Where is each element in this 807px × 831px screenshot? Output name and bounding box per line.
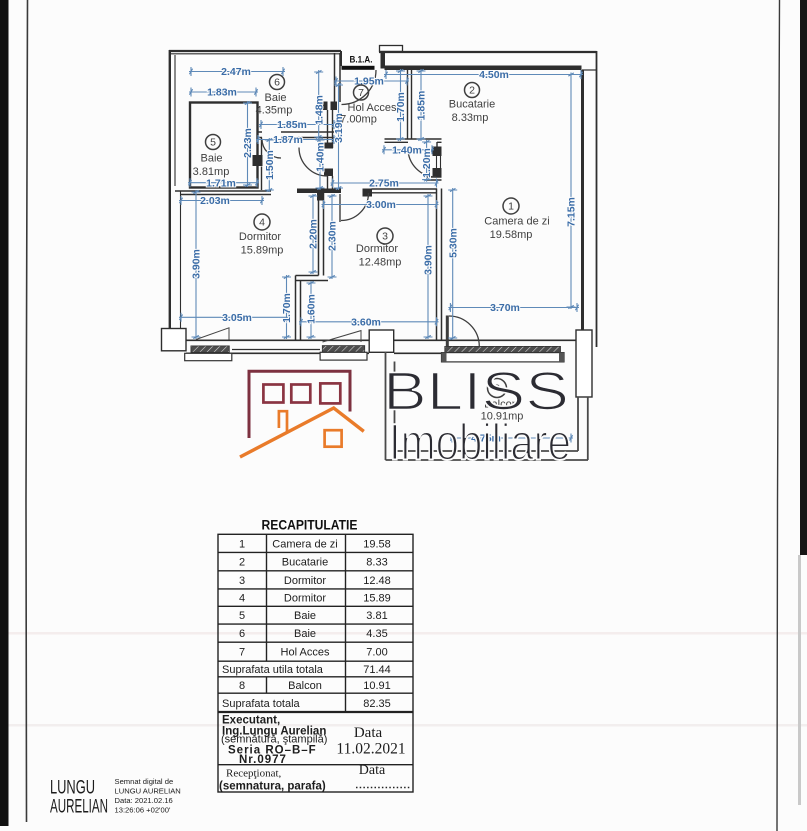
svg-text:7.15m: 7.15m bbox=[566, 197, 578, 227]
svg-text:2.30m: 2.30m bbox=[327, 221, 339, 251]
svg-text:5: 5 bbox=[210, 137, 216, 149]
svg-text:13:26:06 +02'00': 13:26:06 +02'00' bbox=[115, 806, 171, 815]
svg-text:3.81mp: 3.81mp bbox=[193, 166, 230, 178]
svg-text:Baie: Baie bbox=[264, 92, 286, 104]
svg-text:4.50m: 4.50m bbox=[479, 69, 509, 81]
svg-text:3: 3 bbox=[382, 231, 388, 243]
svg-text:8.33mp: 8.33mp bbox=[452, 112, 489, 124]
svg-text:1: 1 bbox=[508, 201, 514, 213]
svg-text:Dormitor: Dormitor bbox=[284, 593, 327, 605]
svg-text:Camera de zi: Camera de zi bbox=[272, 538, 337, 550]
svg-text:82.35: 82.35 bbox=[363, 698, 391, 710]
svg-text:Baie: Baie bbox=[294, 628, 316, 640]
svg-text:4.35mp: 4.35mp bbox=[256, 105, 293, 117]
svg-text:LUNGU AURELIAN: LUNGU AURELIAN bbox=[115, 787, 181, 796]
svg-text:3.90m: 3.90m bbox=[191, 249, 203, 279]
svg-text:1.70m: 1.70m bbox=[281, 293, 293, 323]
svg-text:7.00: 7.00 bbox=[366, 647, 387, 659]
svg-text:12.48mp: 12.48mp bbox=[359, 257, 402, 269]
svg-text:AURELIAN: AURELIAN bbox=[50, 796, 108, 818]
svg-text:Data: 2021.02.16: Data: 2021.02.16 bbox=[115, 796, 173, 805]
svg-text:7: 7 bbox=[239, 647, 245, 659]
svg-text:Camera de zi: Camera de zi bbox=[484, 216, 549, 228]
svg-text:10.91: 10.91 bbox=[363, 680, 391, 692]
svg-text:4: 4 bbox=[239, 593, 245, 605]
svg-text:2.75m: 2.75m bbox=[369, 178, 399, 190]
svg-text:Data: Data bbox=[359, 763, 386, 778]
svg-text:B.1.A.: B.1.A. bbox=[350, 55, 373, 66]
svg-text:1.87m: 1.87m bbox=[273, 134, 303, 146]
svg-text:Baie: Baie bbox=[200, 153, 222, 165]
svg-text:1.60m: 1.60m bbox=[306, 294, 318, 324]
svg-text:(semnatura, parafa): (semnatura, parafa) bbox=[219, 781, 326, 793]
svg-text:7: 7 bbox=[358, 87, 364, 99]
svg-text:6: 6 bbox=[274, 77, 280, 89]
svg-text:4: 4 bbox=[259, 217, 265, 229]
svg-text:2.20m: 2.20m bbox=[308, 219, 320, 249]
svg-text:Bucatarie: Bucatarie bbox=[282, 557, 328, 569]
svg-text:19.58: 19.58 bbox=[363, 538, 391, 550]
svg-text:3.70m: 3.70m bbox=[490, 302, 520, 314]
svg-text:Hol Acces: Hol Acces bbox=[281, 647, 330, 659]
svg-text:12.48: 12.48 bbox=[363, 575, 391, 587]
svg-text:8.33: 8.33 bbox=[366, 557, 387, 569]
svg-text:Dormitor: Dormitor bbox=[239, 231, 282, 243]
svg-text:1.50m: 1.50m bbox=[264, 150, 276, 180]
svg-text:1.48m: 1.48m bbox=[313, 95, 325, 125]
svg-text:1.83m: 1.83m bbox=[207, 87, 237, 99]
svg-text:5.30m: 5.30m bbox=[447, 228, 459, 258]
svg-text:1: 1 bbox=[239, 538, 245, 550]
svg-text:Dormitor: Dormitor bbox=[284, 575, 327, 587]
svg-text:19.58mp: 19.58mp bbox=[490, 229, 533, 241]
svg-text:3.00m: 3.00m bbox=[366, 199, 396, 211]
svg-text:7.00mp: 7.00mp bbox=[340, 114, 377, 126]
svg-text:1.40m: 1.40m bbox=[392, 144, 422, 156]
svg-text:Baie: Baie bbox=[294, 610, 316, 622]
svg-text:1.85m: 1.85m bbox=[416, 91, 428, 121]
svg-text:5: 5 bbox=[239, 610, 245, 622]
svg-text:2: 2 bbox=[239, 557, 245, 569]
svg-text:1.40m: 1.40m bbox=[315, 142, 327, 172]
svg-text:6: 6 bbox=[239, 628, 245, 640]
svg-text:Balcon: Balcon bbox=[288, 680, 322, 692]
svg-text:3.90m: 3.90m bbox=[423, 245, 435, 275]
svg-text:1.20m: 1.20m bbox=[421, 148, 433, 178]
svg-text:Imobiliare: Imobiliare bbox=[389, 414, 571, 471]
svg-text:2.23m: 2.23m bbox=[242, 128, 254, 158]
svg-text:4.35: 4.35 bbox=[366, 628, 387, 640]
svg-text:15.89mp: 15.89mp bbox=[241, 245, 284, 257]
svg-text:RECAPITULATIE: RECAPITULATIE bbox=[262, 518, 358, 533]
svg-text:Bucatarie: Bucatarie bbox=[449, 99, 495, 111]
svg-text:1.71m: 1.71m bbox=[206, 177, 236, 189]
svg-text:3: 3 bbox=[239, 575, 245, 587]
svg-text:3.05m: 3.05m bbox=[222, 312, 252, 324]
svg-text:Suprafata utila totala: Suprafata utila totala bbox=[222, 664, 324, 676]
svg-text:1.85m: 1.85m bbox=[277, 119, 307, 131]
svg-text:3.81: 3.81 bbox=[366, 610, 387, 622]
svg-text:Recepţionat,: Recepţionat, bbox=[226, 768, 282, 780]
svg-text:3.60m: 3.60m bbox=[351, 316, 381, 328]
svg-text:Nr.0977: Nr.0977 bbox=[239, 754, 287, 766]
svg-text:Suprafata totala: Suprafata totala bbox=[222, 698, 301, 710]
svg-text:8: 8 bbox=[239, 680, 245, 692]
svg-text:2.47m: 2.47m bbox=[221, 66, 251, 78]
svg-text:2: 2 bbox=[469, 85, 475, 97]
svg-text:2.03m: 2.03m bbox=[200, 195, 230, 207]
svg-text:BLISS: BLISS bbox=[383, 362, 569, 422]
svg-text:Data: Data bbox=[354, 725, 383, 741]
svg-text:11.02.2021: 11.02.2021 bbox=[336, 741, 405, 758]
svg-text:Hol Acces: Hol Acces bbox=[348, 102, 397, 114]
svg-text:Dormitor: Dormitor bbox=[356, 243, 399, 255]
svg-text:15.89: 15.89 bbox=[363, 593, 391, 605]
svg-text:1.70m: 1.70m bbox=[395, 92, 407, 122]
svg-text:71.44: 71.44 bbox=[363, 664, 391, 676]
svg-text:Semnat digital de: Semnat digital de bbox=[115, 777, 174, 786]
